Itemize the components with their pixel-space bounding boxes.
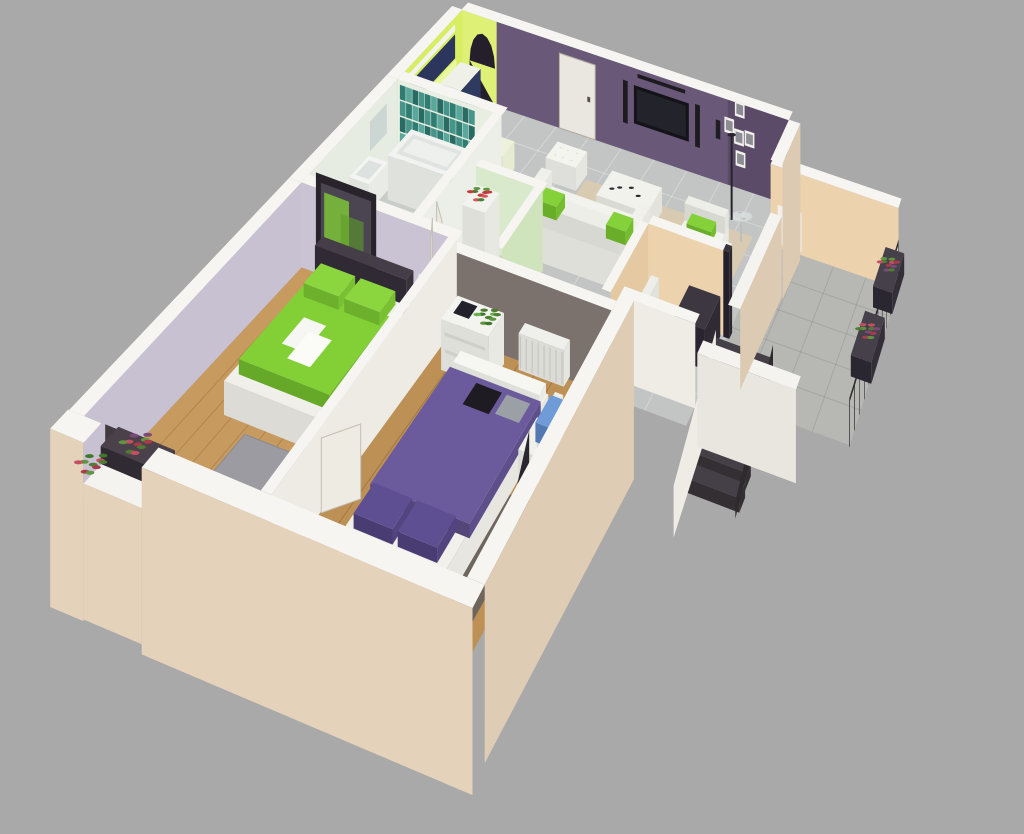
mosaic-tiles-tile [412,105,418,121]
window-flowers-bloom [119,440,128,444]
dresser-plant-bloom [491,309,499,312]
entry-door [559,53,595,140]
dresser-plant-bloom [480,308,488,311]
mosaic-tiles-tile [444,100,450,116]
mosaic-tiles-tile [406,103,412,119]
corner-flowers-bloom [86,471,95,475]
mosaic-tiles-tile [431,112,437,128]
mosaic-tiles-tile [444,116,450,133]
glass-table-deco [742,218,746,220]
mosaic-tiles-tile [400,85,406,101]
ottoman-buttons [576,153,578,154]
mosaic-tiles-tile [450,102,456,118]
flowers-2-bloom [873,327,880,330]
flowers-1-bloom [880,257,887,260]
dresser-plant-bloom [485,322,493,325]
flowers-2-bloom [855,327,862,330]
mosaic-tiles-tile [412,89,418,105]
wc-flowers-bloom [483,188,490,191]
window-flowers-bloom [129,434,138,438]
balcony-railing-post [854,380,855,432]
flowers-2-bloom [867,336,874,339]
wc-flowers-bloom [467,190,474,193]
table-gadgets [636,195,641,197]
flowers-2-bloom [859,323,866,326]
floor-plan-scene [0,0,1024,834]
flowers-1-bloom [889,258,896,261]
mosaic-tiles-tile [406,87,412,103]
wall-sw-window-face [84,484,142,645]
wc-flowers-bloom [485,191,492,194]
ottoman-buttons [571,160,573,161]
speaker-right [695,104,700,148]
dresser-plant-bloom [473,313,481,316]
table-gadgets [617,186,622,188]
flowers-2-bloom [868,323,875,326]
mosaic-tiles-tile [419,107,425,123]
flowers-1-bloom [888,268,895,271]
mosaic-tiles-tile [419,91,425,107]
mosaic-tiles-tile [463,107,469,123]
ottoman-buttons [562,157,564,158]
wc-flowers-bloom [481,195,488,198]
mosaic-tiles-tile [431,96,437,112]
corner-flowers-bloom [92,465,101,469]
ottoman-buttons [567,150,569,151]
corner-column-sw [723,250,729,339]
mosaic-tiles-tile [437,98,443,114]
window-flowers-bloom [130,451,139,455]
mosaic-tiles-tile [469,109,475,125]
wall-sw-a-face [50,429,83,622]
table-gadgets [609,187,614,189]
corner-flowers-bloom [99,454,108,458]
flowers-1-bloom [890,265,897,268]
speaker-left [623,80,628,124]
corner-flowers-bloom [98,460,107,464]
window-flowers-bloom [143,440,152,444]
flowers-1-bloom [893,261,900,264]
flowers-1-bloom [877,260,884,263]
mosaic-tiles-tile [425,110,431,126]
mosaic-tiles-tile [456,105,462,121]
wall-lamp [716,119,721,139]
door-bedroom2 [321,424,360,513]
mosaic-tiles-tile [425,94,431,110]
mosaic-tiles-tile [450,118,456,135]
mosaic-tiles-tile [456,121,462,137]
glass-table-deco [738,212,742,214]
corner-column-se [729,246,732,339]
wc-flowers-bloom [477,198,484,201]
ottoman-buttons [560,147,562,148]
balcony-railing-post [849,396,850,448]
wc-flowers-bloom [473,187,480,190]
window-flowers-bloom [143,433,152,437]
ottoman-buttons [554,154,556,155]
floor-lamp-shade [727,133,736,137]
mosaic-tiles-tile [400,101,406,117]
floor-plan-3d-render [0,0,1024,834]
flowers-2-bloom [869,332,876,335]
table-gadgets [629,187,634,189]
mosaic-tiles-tile [400,117,406,133]
entry-door-handle [587,97,590,103]
mosaic-tiles-tile [463,123,469,139]
dresser-plant-bloom [489,317,497,320]
corner-flowers-bloom [85,454,94,458]
mosaic-tiles-tile [437,114,443,130]
dresser-plant-bloom [493,313,501,316]
window-flowers-bloom [137,445,146,449]
corner-flowers-bloom [74,460,83,464]
